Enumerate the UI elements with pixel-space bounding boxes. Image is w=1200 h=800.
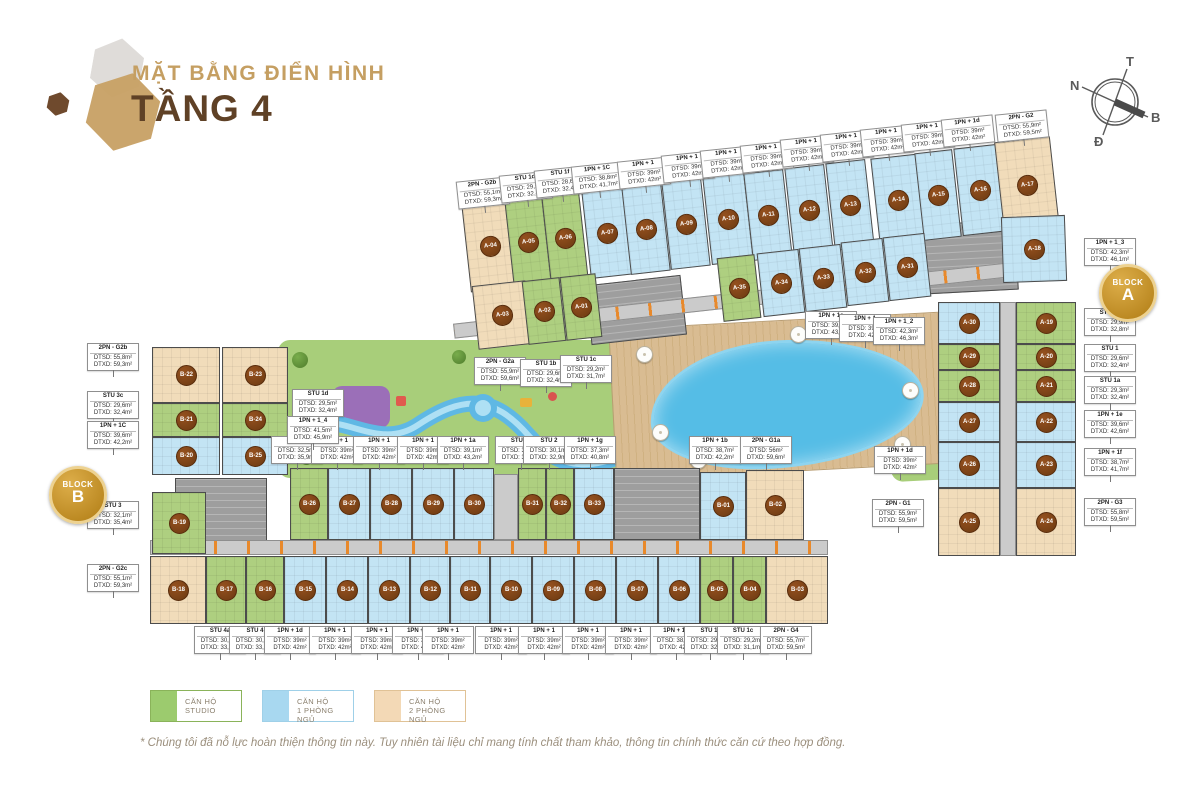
unit-A-21: A-21 <box>1016 370 1076 402</box>
unit-number-marker: A-32 <box>854 261 877 284</box>
compass-left-label: N <box>1070 78 1079 93</box>
unit-number-marker: A-25 <box>959 512 980 533</box>
unit-type-callout: 1PN + 1DTSD: 39m²DTXD: 42m² <box>422 626 474 654</box>
unit-A-25: A-25 <box>938 488 1000 556</box>
floorplan-page: { "header": { "subtitle": "MẶT BẰNG ĐIỂN… <box>0 0 1200 800</box>
umbrella-icon <box>636 346 653 363</box>
unit-number-marker: A-12 <box>798 199 821 222</box>
unit-B-27: B-27 <box>328 468 370 540</box>
unit-A-01: A-01 <box>560 273 603 341</box>
legend-item-two: CĂN HỘ2 PHÒNG NGỦ <box>374 690 466 722</box>
unit-B-10: B-10 <box>490 556 532 624</box>
unit-number-marker: B-29 <box>423 494 444 515</box>
unit-A-24: A-24 <box>1016 488 1076 556</box>
unit-B-24: B-24 <box>222 403 288 437</box>
unit-type-callout: 1PN + 1_3DTSD: 42,3m²DTXD: 46,1m² <box>1084 238 1136 266</box>
unit-number-marker: B-33 <box>584 494 605 515</box>
corridor <box>1000 302 1016 556</box>
legend-label: CĂN HỘ1 PHÒNG NGỦ <box>289 691 353 721</box>
unit-B-16: B-16 <box>246 556 284 624</box>
unit-type-callout: STU 1dDTSD: 29,5m²DTXD: 32,4m² <box>292 389 344 417</box>
unit-number-marker: B-12 <box>420 580 441 601</box>
unit-B-19: B-19 <box>152 492 206 554</box>
unit-type-callout: STU 1DTSD: 29,6m²DTXD: 32,4m² <box>1084 344 1136 372</box>
unit-number-marker: A-27 <box>959 412 980 433</box>
compass-icon: T N B Đ <box>1068 50 1168 155</box>
unit-type-callout: 1PN + 1_2DTSD: 42,3m²DTXD: 46,3m² <box>873 317 925 345</box>
unit-number-marker: A-02 <box>533 300 556 323</box>
unit-number-marker: A-07 <box>596 222 619 245</box>
tree-icon <box>452 350 466 364</box>
unit-type-callout: 1PN + 1gDTSD: 37,3m²DTXD: 40,8m² <box>564 436 616 464</box>
compass-right-label: B <box>1151 110 1160 125</box>
unit-number-marker: B-09 <box>543 580 564 601</box>
unit-number-marker: B-08 <box>585 580 606 601</box>
unit-number-marker: A-11 <box>757 204 780 227</box>
unit-B-17: B-17 <box>206 556 246 624</box>
unit-type-callout: 2PN - G2aDTSD: 55,9m²DTXD: 59,6m² <box>474 357 526 385</box>
unit-number-marker: A-23 <box>1036 455 1057 476</box>
unit-number-marker: A-24 <box>1036 512 1057 533</box>
unit-B-32: B-32 <box>546 468 574 540</box>
unit-type-callout: 2PN - G2bDTSD: 55,8m²DTXD: 59,3m² <box>87 343 139 371</box>
unit-number-marker: A-08 <box>635 218 658 241</box>
unit-type-callout: 2PN - G1aDTSD: 56m²DTXD: 59,6m² <box>740 436 792 464</box>
unit-number-marker: B-30 <box>464 494 485 515</box>
unit-number-marker: B-11 <box>460 580 481 601</box>
unit-A-35: A-35 <box>717 254 762 322</box>
unit-type-callout: 1PN + 1aDTSD: 39,1m²DTXD: 43,2m² <box>437 436 489 464</box>
unit-type-callout: 2PN - G2DTSD: 55,9m²DTXD: 59,5m² <box>995 109 1050 142</box>
unit-number-marker: B-26 <box>299 494 320 515</box>
unit-number-marker: A-22 <box>1036 412 1057 433</box>
unit-B-07: B-07 <box>616 556 658 624</box>
legend-color-swatch <box>151 691 177 721</box>
unit-number-marker: A-10 <box>717 208 740 231</box>
unit-B-22: B-22 <box>152 347 220 403</box>
unit-number-marker: A-17 <box>1016 174 1039 197</box>
unit-B-29: B-29 <box>412 468 454 540</box>
unit-B-12: B-12 <box>410 556 450 624</box>
umbrella-icon <box>902 382 919 399</box>
block-a-badge: BLOCK A <box>1099 264 1157 322</box>
unit-type-callout: 1PN + 1bDTSD: 38,7m²DTXD: 42,2m² <box>689 436 741 464</box>
unit-number-marker: B-04 <box>740 580 761 601</box>
unit-number-marker: B-20 <box>176 446 197 467</box>
unit-A-26: A-26 <box>938 442 1000 488</box>
unit-number-marker: A-35 <box>728 277 751 300</box>
unit-type-callout: 1PN + 1eDTSD: 39,6m²DTXD: 42,6m² <box>1084 410 1136 438</box>
unit-number-marker: A-14 <box>887 189 910 212</box>
unit-A-27: A-27 <box>938 402 1000 442</box>
unit-B-13: B-13 <box>368 556 410 624</box>
corridor <box>494 474 518 540</box>
unit-number-marker: A-21 <box>1036 376 1057 397</box>
unit-B-03: B-03 <box>766 556 828 624</box>
legend-label: CĂN HỘSTUDIO <box>177 691 241 721</box>
unit-number-marker: A-20 <box>1036 347 1057 368</box>
unit-B-26: B-26 <box>290 468 328 540</box>
unit-type-callout: 1PN + 1dDTSD: 39m²DTXD: 42m² <box>941 114 996 147</box>
unit-A-29: A-29 <box>938 344 1000 370</box>
tree-icon <box>292 352 308 368</box>
unit-number-marker: A-28 <box>959 376 980 397</box>
legend-item-one: CĂN HỘ1 PHÒNG NGỦ <box>262 690 354 722</box>
unit-number-marker: A-26 <box>959 455 980 476</box>
unit-number-marker: A-34 <box>770 272 793 295</box>
unit-type-callout: 1PN + 1_4DTSD: 41,5m²DTXD: 45,9m² <box>287 416 339 444</box>
unit-B-18: B-18 <box>150 556 206 624</box>
unit-number-marker: A-18 <box>1024 239 1046 261</box>
unit-number-marker: A-06 <box>554 227 577 250</box>
unit-B-21: B-21 <box>152 403 220 437</box>
unit-B-08: B-08 <box>574 556 616 624</box>
unit-number-marker: B-01 <box>713 496 734 517</box>
unit-B-33: B-33 <box>574 468 614 540</box>
page-subtitle: MẶT BẰNG ĐIỂN HÌNH <box>132 62 385 86</box>
unit-A-23: A-23 <box>1016 442 1076 488</box>
unit-number-marker: A-13 <box>839 194 862 217</box>
unit-number-marker: B-07 <box>627 580 648 601</box>
unit-number-marker: A-05 <box>517 231 540 254</box>
unit-number-marker: B-28 <box>381 494 402 515</box>
unit-number-marker: B-17 <box>216 580 237 601</box>
block-a-letter: A <box>1102 287 1154 303</box>
unit-number-marker: A-09 <box>675 213 698 236</box>
unit-A-22: A-22 <box>1016 402 1076 442</box>
unit-A-30: A-30 <box>938 302 1000 344</box>
unit-A-34: A-34 <box>757 249 806 317</box>
unit-B-23: B-23 <box>222 347 288 403</box>
unit-number-marker: B-15 <box>295 580 316 601</box>
unit-B-06: B-06 <box>658 556 700 624</box>
footnote: * Chúng tôi đã nỗ lực hoàn thiện thông t… <box>140 737 1040 749</box>
unit-number-marker: B-03 <box>787 580 808 601</box>
unit-B-30: B-30 <box>454 468 494 540</box>
unit-number-marker: A-33 <box>812 267 835 290</box>
unit-number-marker: A-15 <box>927 184 950 207</box>
block-b-badge: BLOCK B <box>49 466 107 524</box>
unit-B-05: B-05 <box>700 556 733 624</box>
unit-type-callout: 2PN - G4DTSD: 55,7m²DTXD: 59,5m² <box>760 626 812 654</box>
legend-color-swatch <box>375 691 401 721</box>
unit-type-callout: 2PN - G3DTSD: 55,8m²DTXD: 59,5m² <box>1084 498 1136 526</box>
legend-color-swatch <box>263 691 289 721</box>
unit-A-02: A-02 <box>522 277 567 345</box>
unit-number-marker: A-19 <box>1036 313 1057 334</box>
unit-number-marker: B-21 <box>176 410 197 431</box>
unit-A-31: A-31 <box>883 233 932 301</box>
unit-number-marker: A-29 <box>959 347 980 368</box>
unit-number-marker: B-25 <box>245 446 266 467</box>
unit-number-marker: B-13 <box>379 580 400 601</box>
legend-item-studio: CĂN HỘSTUDIO <box>150 690 242 722</box>
unit-type-callout: STU 3cDTSD: 29,6m²DTXD: 32,4m² <box>87 391 139 419</box>
unit-number-marker: B-32 <box>550 494 571 515</box>
unit-number-marker: B-31 <box>522 494 543 515</box>
unit-type-callout: 2PN - G2cDTSD: 55,1m²DTXD: 59,3m² <box>87 564 139 592</box>
unit-number-marker: A-01 <box>570 296 593 319</box>
unit-number-marker: A-04 <box>479 235 502 258</box>
unit-B-28: B-28 <box>370 468 412 540</box>
unit-number-marker: B-18 <box>168 580 189 601</box>
block-b-letter: B <box>52 489 104 505</box>
unit-number-marker: A-03 <box>491 304 514 327</box>
unit-A-13: A-13 <box>825 159 874 251</box>
unit-B-01: B-01 <box>700 472 746 540</box>
umbrella-icon <box>652 424 669 441</box>
unit-A-19: A-19 <box>1016 302 1076 344</box>
unit-B-31: B-31 <box>518 468 546 540</box>
unit-B-14: B-14 <box>326 556 368 624</box>
unit-A-33: A-33 <box>799 244 848 312</box>
unit-type-callout: 1PN + 1CDTSD: 39,6m²DTXD: 42,2m² <box>87 421 139 449</box>
unit-number-marker: A-16 <box>969 179 992 202</box>
page-title: TẦNG 4 <box>131 88 273 130</box>
unit-type-callout: STU 1cDTSD: 29,2m²DTXD: 31,7m² <box>560 355 612 383</box>
logo-hexagon-small <box>44 90 72 118</box>
unit-A-32: A-32 <box>841 238 890 306</box>
compass-bottom-label: Đ <box>1094 134 1103 149</box>
unit-B-15: B-15 <box>284 556 326 624</box>
legend-label: CĂN HỘ2 PHÒNG NGỦ <box>401 691 465 721</box>
unit-B-02: B-02 <box>746 470 804 540</box>
corridor <box>150 540 828 555</box>
service-core <box>614 468 700 540</box>
unit-type-callout: 1PN + 1fDTSD: 38,7m²DTXD: 41,7m² <box>1084 448 1136 476</box>
unit-B-11: B-11 <box>450 556 490 624</box>
unit-A-28: A-28 <box>938 370 1000 402</box>
unit-number-marker: B-14 <box>337 580 358 601</box>
compass-top-label: T <box>1126 54 1134 69</box>
unit-number-marker: B-02 <box>765 495 786 516</box>
unit-number-marker: B-05 <box>707 580 728 601</box>
unit-number-marker: B-24 <box>245 410 266 431</box>
unit-A-20: A-20 <box>1016 344 1076 370</box>
unit-number-marker: B-19 <box>169 513 190 534</box>
unit-type-callout: 2PN - G1DTSD: 55,9m²DTXD: 59,5m² <box>872 499 924 527</box>
unit-B-20: B-20 <box>152 437 220 475</box>
unit-number-marker: A-31 <box>896 256 919 279</box>
unit-number-marker: B-22 <box>176 365 197 386</box>
unit-number-marker: B-06 <box>669 580 690 601</box>
unit-A-18: A-18 <box>1001 215 1067 283</box>
unit-number-marker: B-23 <box>245 365 266 386</box>
unit-number-marker: A-30 <box>959 313 980 334</box>
unit-number-marker: B-10 <box>501 580 522 601</box>
unit-type-callout: STU 1aDTSD: 29,3m²DTXD: 32,4m² <box>1084 376 1136 404</box>
unit-number-marker: B-27 <box>339 494 360 515</box>
unit-type-callout: 1PN + 1dDTSD: 39m²DTXD: 42m² <box>874 446 926 474</box>
unit-B-04: B-04 <box>733 556 766 624</box>
unit-B-09: B-09 <box>532 556 574 624</box>
unit-number-marker: B-16 <box>255 580 276 601</box>
